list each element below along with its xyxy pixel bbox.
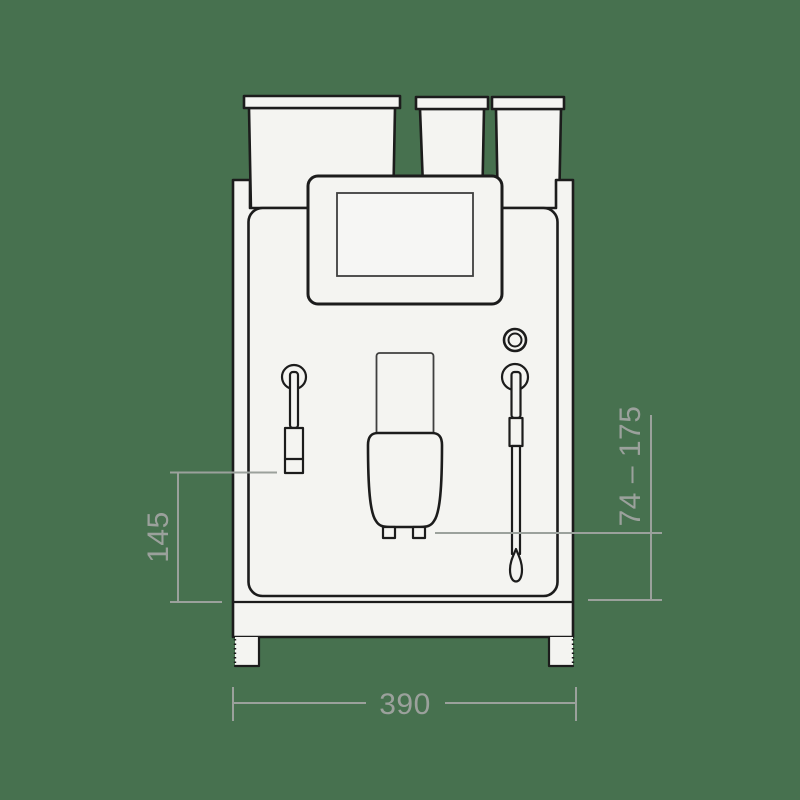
coffee-spout-slider — [377, 353, 434, 435]
bean-hopper-left-lid — [244, 96, 400, 108]
coffee-spout — [368, 353, 442, 538]
bean-hopper-middle-lid — [416, 97, 488, 109]
bean-hopper-right-lid — [492, 97, 564, 109]
foot-left — [235, 637, 259, 666]
steam-wand-handle — [510, 418, 523, 446]
dimension-width: 390 — [233, 687, 576, 721]
steam-wand-lower-tube — [512, 446, 520, 554]
dimension-bottom-label: 390 — [379, 688, 431, 721]
foot-left-fill — [235, 637, 259, 666]
coffee-spout-head — [368, 433, 442, 527]
bean-hopper-right-body — [496, 109, 561, 212]
steam-knob-inner-ring — [509, 334, 522, 347]
dimension-left-label: 145 — [142, 511, 175, 563]
display-screen — [337, 193, 473, 276]
machine-dimension-diagram: 145 74 – 175 390 — [0, 0, 800, 800]
drawing-canvas: 145 74 – 175 390 — [0, 0, 800, 800]
hot-water-spout-stem — [290, 372, 298, 428]
hot-water-spout-nozzle — [285, 428, 303, 473]
coffee-spout-nozzle-left — [383, 527, 395, 538]
display — [308, 176, 502, 304]
foot-right-fill — [549, 637, 573, 666]
steam-wand-upper-tube — [512, 372, 521, 418]
coffee-spout-nozzle-right — [413, 527, 425, 538]
dimension-right-label: 74 – 175 — [614, 406, 647, 527]
foot-right — [549, 637, 573, 666]
